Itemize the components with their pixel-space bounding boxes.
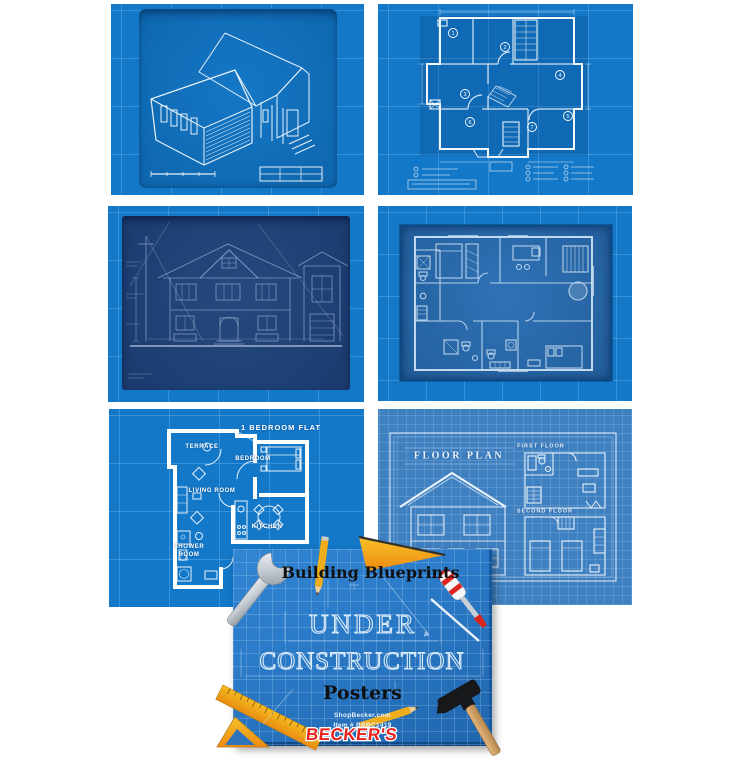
room-number: 2 xyxy=(503,45,506,51)
poster-house-elevation xyxy=(108,206,364,402)
website-text: ShopBecker.com xyxy=(233,711,492,721)
house-elevation-graphic xyxy=(108,206,364,402)
poster-isometric-house xyxy=(111,4,364,195)
bedroom-label: BEDROOM xyxy=(235,456,271,464)
flat-title-label: 1 BEDROOM FLAT xyxy=(241,423,321,433)
room-number: 3 xyxy=(463,92,466,98)
kitchen-label: KITCHEN xyxy=(252,524,283,532)
second-floor-label: SECOND FLOOR xyxy=(517,508,573,515)
shower-room-label: SHOWER ROOM xyxy=(170,544,208,560)
room-number: 4 xyxy=(558,73,561,79)
room-number: 7 xyxy=(530,125,533,131)
room-number: 5 xyxy=(566,114,569,120)
room-number: 1 xyxy=(451,31,454,37)
poster-floor-plan-numbered: 1 2 3 4 5 6 7 xyxy=(378,4,633,195)
cover-subtitle: Posters xyxy=(233,682,492,704)
floor-plan-title-label: FLOOR PLAN xyxy=(414,450,504,463)
room-number: 6 xyxy=(468,120,471,126)
apartment-plan-graphic xyxy=(378,206,632,401)
isometric-house-graphic xyxy=(111,4,364,195)
ordering-info: ShopBecker.com Item # BBBC1419 xyxy=(233,711,492,731)
first-floor-label: FIRST FLOOR xyxy=(517,443,565,450)
living-room-label: LIVING ROOM xyxy=(189,488,236,496)
terrace-label: TERRACE xyxy=(185,444,218,452)
cover-heading: Building Blueprints xyxy=(263,563,478,582)
cover-card: UNDER CONSTRUCTION Building Blueprints P… xyxy=(233,549,492,746)
item-number-text: Item # BBBC1419 xyxy=(233,721,492,731)
poster-apartment-plan xyxy=(378,206,632,401)
legend-graphic xyxy=(408,162,594,189)
numbered-floor-plan-graphic: 1 2 3 4 5 6 7 xyxy=(378,4,633,195)
